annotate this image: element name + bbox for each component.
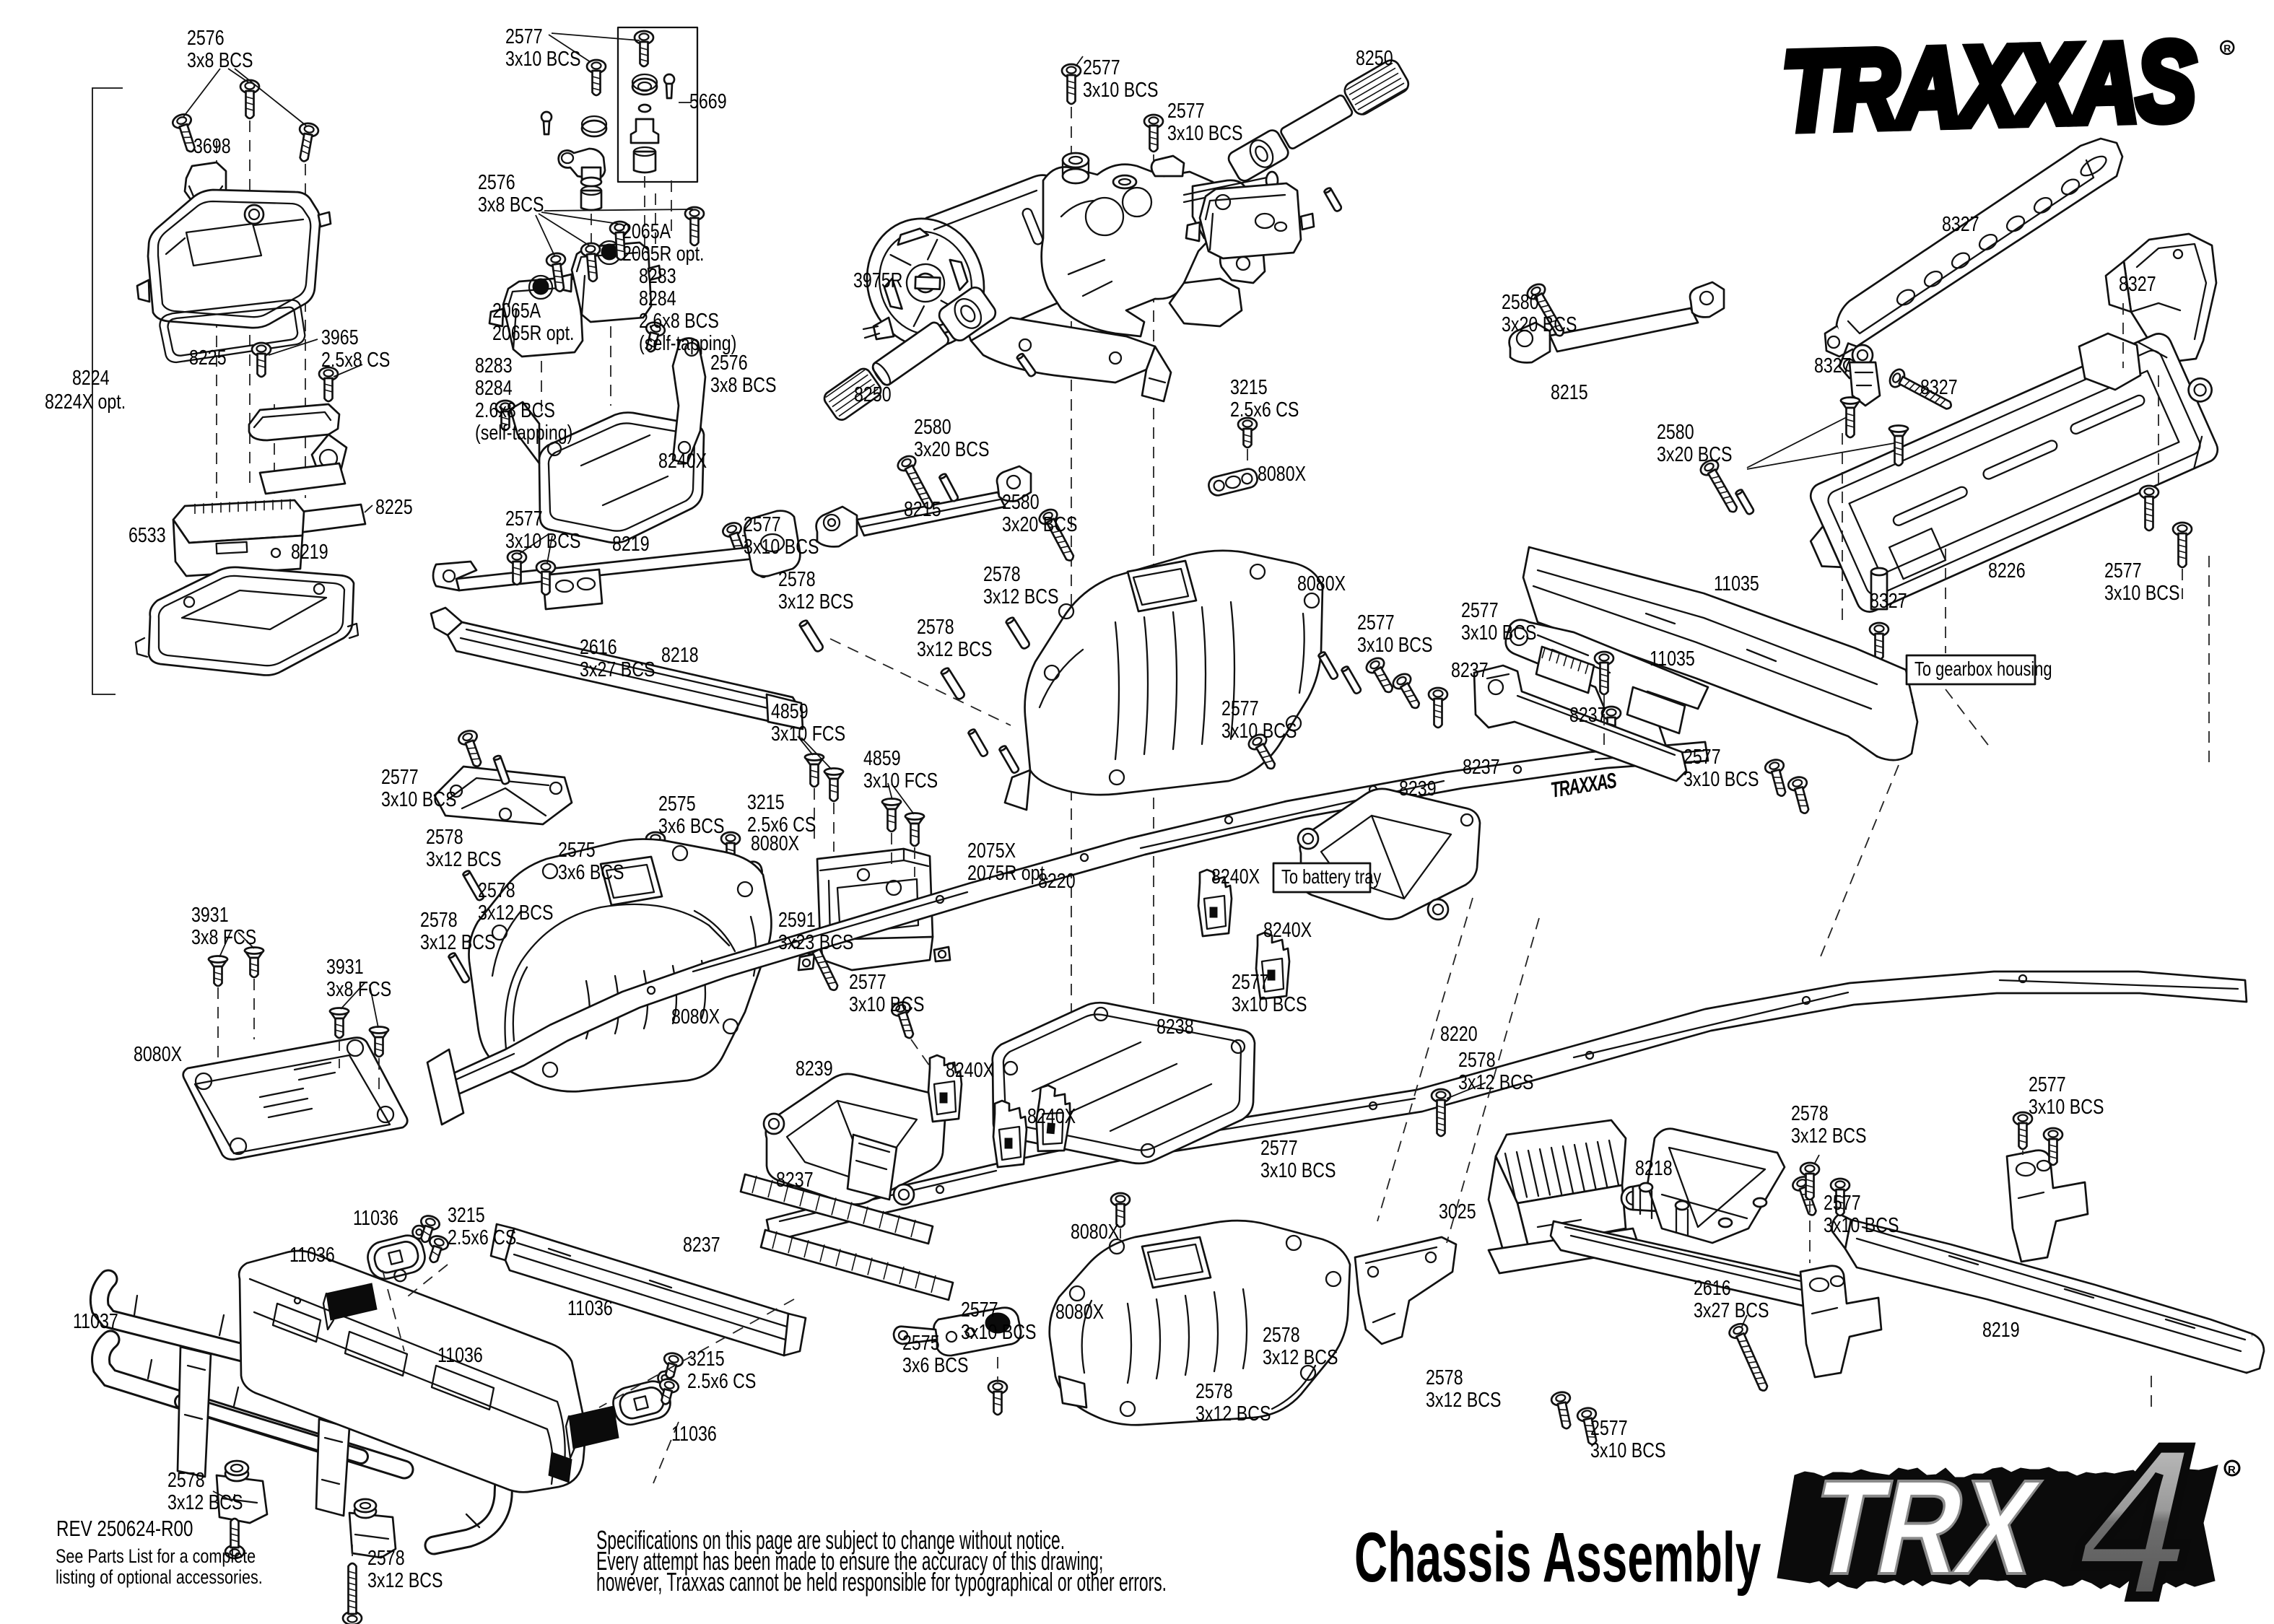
svg-text:3698: 3698 [193,134,231,157]
svg-text:3025: 3025 [1439,1199,1476,1223]
svg-text:8240X: 8240X [1027,1104,1076,1127]
svg-text:8237: 8237 [683,1232,720,1256]
svg-text:8080X: 8080X [134,1042,182,1065]
svg-text:8225: 8225 [375,494,413,518]
svg-text:8327: 8327 [1870,588,1907,612]
svg-text:8225: 8225 [189,345,227,369]
svg-text:11036: 11036 [567,1296,613,1319]
svg-text:6533: 6533 [128,523,166,546]
svg-text:TRX: TRX [1799,1451,2051,1602]
svg-text:8237: 8237 [776,1167,814,1191]
svg-text:8327: 8327 [1814,353,1852,377]
svg-text:R: R [2228,1464,2236,1476]
svg-text:8219: 8219 [612,531,650,555]
svg-text:11036: 11036 [671,1421,717,1445]
svg-text:8080X: 8080X [1055,1299,1104,1323]
svg-text:8218: 8218 [661,642,699,666]
svg-text:8240X: 8240X [1211,864,1260,888]
svg-text:REV 250624-R00: REV 250624-R00 [56,1516,193,1541]
svg-text:8224: 8224 [72,365,110,389]
svg-text:8224X opt.: 8224X opt. [45,389,126,413]
svg-text:8080X: 8080X [1297,571,1346,595]
svg-text:11035: 11035 [1714,571,1759,595]
svg-text:5669: 5669 [689,89,727,113]
svg-text:8226: 8226 [1988,558,2026,582]
svg-text:8327: 8327 [2119,271,2156,295]
svg-text:8218: 8218 [1635,1156,1673,1179]
svg-text:11036: 11036 [353,1205,398,1229]
svg-text:To gearbox housing: To gearbox housing [1914,658,2052,680]
svg-text:8080X: 8080X [671,1004,720,1028]
svg-text:TRAXXAS: TRAXXAS [1780,18,2197,154]
svg-text:8080X: 8080X [1071,1219,1119,1243]
svg-text:8239: 8239 [796,1056,833,1080]
svg-text:8237: 8237 [1569,702,1607,726]
svg-text:11037: 11037 [73,1309,118,1332]
svg-text:11036: 11036 [437,1343,483,1366]
svg-text:R: R [2223,43,2231,54]
svg-text:11035: 11035 [1650,646,1695,670]
svg-text:8327: 8327 [1942,211,1979,235]
svg-text:8238: 8238 [1156,1014,1194,1038]
svg-text:8220: 8220 [1440,1021,1478,1045]
svg-text:8215: 8215 [1551,380,1588,403]
svg-text:8080X: 8080X [751,831,799,855]
svg-text:8239: 8239 [1399,776,1437,800]
svg-text:8220: 8220 [1038,868,1076,892]
svg-text:See Parts List for a completel: See Parts List for a completelisting of … [56,1546,263,1589]
svg-text:8240X: 8240X [946,1057,994,1081]
svg-text:8237: 8237 [1451,658,1489,681]
svg-text:8327: 8327 [1920,375,1958,398]
svg-text:8219: 8219 [1982,1317,2020,1341]
svg-text:8215: 8215 [904,497,941,520]
svg-text:8237: 8237 [1463,754,1500,778]
svg-text:8080X: 8080X [1258,461,1306,485]
svg-text:11036: 11036 [289,1242,335,1266]
svg-text:3975R: 3975R [853,268,902,292]
svg-text:8240X: 8240X [1263,917,1312,941]
svg-text:8250: 8250 [854,382,892,406]
svg-text:Chassis Assembly: Chassis Assembly [1354,1519,1761,1597]
svg-text:8250: 8250 [1356,45,1393,69]
svg-text:8219: 8219 [291,539,328,563]
svg-text:To battery tray: To battery tray [1281,865,1382,888]
svg-text:8240X: 8240X [658,448,707,472]
